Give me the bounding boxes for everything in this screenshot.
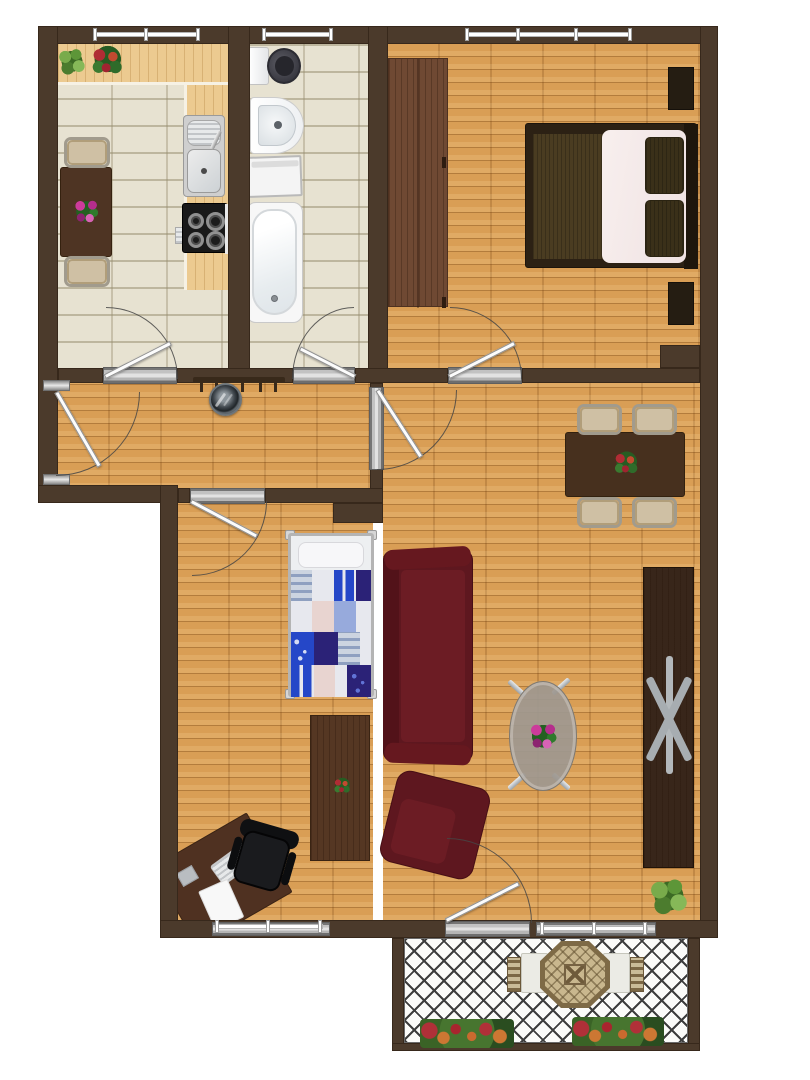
toilet-tank xyxy=(248,47,269,85)
balcony-chair-back xyxy=(630,957,644,992)
bed-blanket xyxy=(533,134,603,259)
flower-box xyxy=(572,1017,664,1046)
coat-rack-rail xyxy=(193,377,285,383)
burner xyxy=(206,231,225,250)
coat-hook xyxy=(274,382,277,392)
window-kids xyxy=(217,924,323,929)
washing-machine xyxy=(246,155,302,198)
washer-panel xyxy=(251,160,298,168)
wall-pillar-bedroom xyxy=(660,345,700,368)
bed-pillow xyxy=(645,200,684,257)
wall-right xyxy=(700,26,718,938)
chair-seat xyxy=(580,407,619,432)
wardrobe-seam xyxy=(417,59,419,308)
window-bedroom xyxy=(467,32,632,37)
bed-pillow xyxy=(645,137,684,194)
flower-box xyxy=(420,1019,514,1048)
chair-seat xyxy=(580,500,619,525)
table-center xyxy=(564,964,586,985)
wall-hall-c xyxy=(355,368,448,383)
chair-seat xyxy=(67,259,107,284)
burner xyxy=(188,232,204,248)
bathroom-sink xyxy=(250,97,304,154)
window-tick xyxy=(262,28,266,41)
window-tick xyxy=(329,28,333,41)
toilet xyxy=(248,47,302,85)
kitchen-chair xyxy=(64,137,110,168)
floor-plan xyxy=(0,0,810,1080)
flower-bouquet-counter xyxy=(86,43,128,83)
sink-drain xyxy=(201,168,207,174)
coat-hook xyxy=(241,382,244,392)
window-tick xyxy=(266,920,270,933)
umbrella-stand xyxy=(209,383,242,416)
sofa-back xyxy=(383,558,399,754)
kitchen-sink xyxy=(183,115,225,197)
flower-bouquet-coffee xyxy=(525,718,563,756)
window-tick xyxy=(144,28,148,41)
window-tick xyxy=(215,920,219,933)
potted-plant-living xyxy=(645,874,693,920)
dining-chair xyxy=(632,497,677,528)
wall-kids-left xyxy=(160,485,178,938)
sink-tap xyxy=(274,121,282,129)
window-tick xyxy=(465,28,469,41)
window-tick xyxy=(643,922,647,935)
window-tick xyxy=(196,28,200,41)
window-tick xyxy=(93,28,97,41)
double-bed xyxy=(525,123,697,268)
nightstand xyxy=(668,282,694,325)
kitchen-chair xyxy=(64,256,110,287)
dining-table xyxy=(565,432,685,497)
window-tick xyxy=(540,922,544,935)
burner xyxy=(206,212,225,231)
wardrobe-bedroom xyxy=(388,58,448,307)
wardrobe-handle xyxy=(442,157,446,168)
window-bathroom xyxy=(264,32,333,37)
chair-seat xyxy=(635,500,674,525)
wall-kids-corner xyxy=(333,503,383,523)
coat-hook xyxy=(200,382,203,392)
flower-bouquet-dining xyxy=(610,449,642,481)
nightstand xyxy=(668,67,694,110)
wall-kitchen-bath xyxy=(228,26,250,383)
kitchen-counter-edge xyxy=(58,82,228,85)
window-tick xyxy=(628,28,632,41)
dining-chair xyxy=(577,404,622,435)
balcony-chair-back xyxy=(507,957,521,992)
wardrobe-handle xyxy=(442,297,446,308)
wall-balcony-left xyxy=(392,938,404,1051)
chair-seat xyxy=(67,140,107,165)
tub-drain xyxy=(271,295,278,302)
wall-hall-d xyxy=(522,368,700,383)
window-tick xyxy=(318,920,322,933)
door-threshold-balcony xyxy=(445,921,530,937)
toilet-seat-inner xyxy=(275,56,294,76)
burner xyxy=(188,213,204,229)
wall-left xyxy=(38,26,58,503)
sofa xyxy=(383,548,473,764)
wall-kids-top-a xyxy=(178,488,190,503)
coat-hook xyxy=(259,382,262,392)
dining-chair xyxy=(632,404,677,435)
window-tick xyxy=(592,922,596,935)
entry-jamb xyxy=(43,380,70,391)
coffee-table xyxy=(509,681,577,791)
flower-bouquet-table xyxy=(70,195,104,229)
wall-bath-bedroom xyxy=(368,26,388,383)
dining-chair xyxy=(577,497,622,528)
window-tick xyxy=(574,28,578,41)
stove xyxy=(182,203,228,253)
bed-headboard xyxy=(684,124,698,269)
wall-hall-bottom xyxy=(38,485,178,503)
sofa-armrest xyxy=(385,743,472,766)
kitchen-table xyxy=(60,167,112,257)
sideboard xyxy=(643,567,694,868)
wall-balcony-right xyxy=(688,938,700,1051)
potted-plant-kitchen xyxy=(55,45,89,79)
window-tick xyxy=(516,28,520,41)
wall-kids-top-b xyxy=(265,488,383,503)
chair-seat xyxy=(635,407,674,432)
bathtub xyxy=(246,202,303,323)
sofa-seat xyxy=(401,570,465,742)
